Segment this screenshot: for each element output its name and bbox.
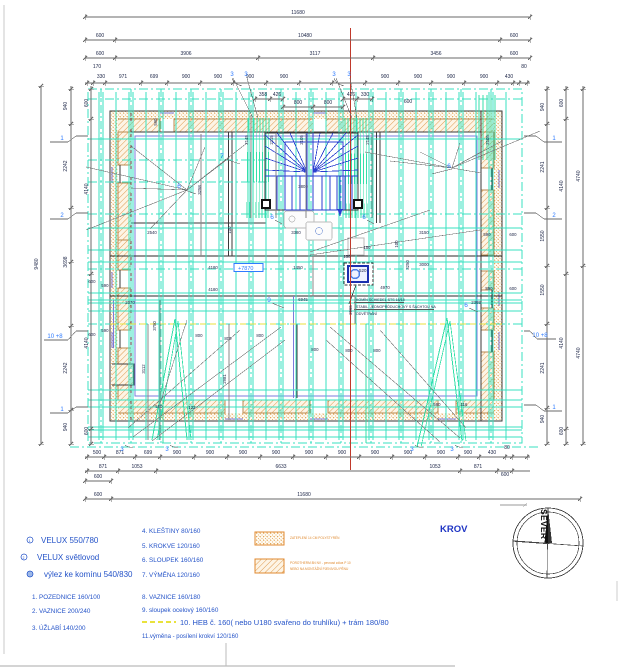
- svg-text:9. sloupek ocelový 160/160: 9. sloupek ocelový 160/160: [142, 607, 219, 614]
- svg-text:2370: 2370: [125, 300, 135, 305]
- svg-text:1. POZEDNICE 160/100: 1. POZEDNICE 160/100: [32, 594, 101, 601]
- svg-text:871: 871: [99, 464, 108, 470]
- svg-text:11680: 11680: [291, 10, 305, 16]
- svg-text:80: 80: [521, 64, 527, 70]
- svg-text:80: 80: [504, 445, 510, 451]
- svg-text:600: 600: [559, 99, 565, 108]
- svg-text:3750: 3750: [152, 321, 157, 331]
- svg-text:8. VAZNICE 160/180: 8. VAZNICE 160/180: [142, 594, 201, 601]
- svg-text:900: 900: [414, 74, 423, 80]
- svg-text:3698: 3698: [63, 256, 69, 267]
- svg-text:3. ÚŽLABÍ 140/200: 3. ÚŽLABÍ 140/200: [32, 623, 86, 632]
- svg-text:3800: 3800: [298, 184, 308, 189]
- svg-text:2105: 2105: [485, 135, 490, 145]
- svg-text:100: 100: [394, 240, 399, 248]
- svg-text:POROTHERM 8N NV - pevnost zdiv: POROTHERM 8N NV - pevnost zdiva P 10: [290, 561, 351, 565]
- svg-text:4140: 4140: [84, 183, 90, 194]
- svg-text:4180: 4180: [208, 265, 218, 270]
- svg-text:1550: 1550: [540, 284, 546, 295]
- svg-text:590: 590: [153, 118, 158, 126]
- svg-text:4970: 4970: [380, 285, 390, 290]
- svg-text:600: 600: [88, 279, 96, 284]
- svg-text:900: 900: [371, 450, 380, 456]
- svg-text:5. KROKVE 120/160: 5. KROKVE 120/160: [142, 543, 200, 550]
- svg-text:900: 900: [437, 450, 446, 456]
- svg-text:900: 900: [182, 74, 191, 80]
- svg-text:3150: 3150: [419, 230, 429, 235]
- svg-text:600: 600: [96, 33, 105, 39]
- svg-text:9: 9: [267, 297, 271, 304]
- svg-text:940: 940: [540, 103, 546, 112]
- svg-text:590: 590: [483, 232, 491, 237]
- svg-text:150: 150: [363, 245, 371, 250]
- svg-text:10480: 10480: [298, 33, 312, 39]
- svg-text:2981: 2981: [222, 374, 227, 384]
- svg-text:100: 100: [227, 226, 232, 234]
- svg-text:2145: 2145: [365, 135, 370, 145]
- svg-text:2540: 2540: [147, 230, 157, 235]
- svg-text:150: 150: [343, 254, 351, 259]
- svg-text:122: 122: [188, 405, 196, 410]
- svg-text:6: 6: [270, 214, 274, 221]
- svg-text:900: 900: [464, 450, 473, 456]
- svg-text:10 +8: 10 +8: [47, 334, 63, 340]
- svg-text:6633: 6633: [275, 464, 286, 470]
- svg-text:2115: 2115: [269, 135, 274, 145]
- svg-text:7. VÝMĚNA 120/160: 7. VÝMĚNA 120/160: [142, 570, 200, 579]
- svg-text:900: 900: [305, 450, 314, 456]
- svg-text:2241: 2241: [540, 161, 546, 172]
- svg-text:1053: 1053: [131, 464, 142, 470]
- svg-text:800: 800: [294, 100, 303, 106]
- svg-text:6945: 6945: [298, 297, 308, 302]
- svg-text:2145: 2145: [244, 135, 249, 145]
- svg-text:4140: 4140: [559, 180, 565, 191]
- svg-text:10 +8: 10 +8: [532, 333, 548, 339]
- svg-text:170: 170: [93, 64, 102, 70]
- svg-text:600: 600: [88, 332, 96, 337]
- svg-text:800: 800: [324, 100, 333, 106]
- svg-text:330: 330: [361, 92, 370, 98]
- svg-text:900: 900: [214, 74, 223, 80]
- svg-text:2965: 2965: [348, 305, 353, 315]
- svg-text:871: 871: [474, 464, 483, 470]
- svg-text:600: 600: [510, 51, 519, 57]
- svg-text:11680: 11680: [297, 492, 311, 498]
- svg-text:2241: 2241: [540, 362, 546, 373]
- svg-text:699: 699: [144, 450, 153, 456]
- svg-text:800: 800: [373, 348, 381, 353]
- svg-text:900: 900: [239, 450, 248, 456]
- svg-text:1053: 1053: [429, 464, 440, 470]
- svg-text:+7870: +7870: [238, 266, 253, 272]
- svg-text:1450: 1450: [293, 265, 303, 270]
- svg-text:900: 900: [338, 450, 347, 456]
- svg-text:430: 430: [505, 74, 514, 80]
- svg-text:600: 600: [84, 99, 90, 108]
- svg-text:výlez ke komínu 540/830: výlez ke komínu 540/830: [44, 570, 133, 579]
- svg-text:800: 800: [345, 348, 353, 353]
- svg-text:900: 900: [206, 450, 215, 456]
- svg-text:4180: 4180: [208, 287, 218, 292]
- svg-text:940: 940: [540, 415, 546, 424]
- svg-text:4140: 4140: [559, 337, 565, 348]
- svg-text:2: 2: [23, 556, 25, 560]
- svg-text:590: 590: [155, 404, 163, 409]
- svg-text:3380: 3380: [291, 230, 301, 235]
- svg-text:520: 520: [359, 268, 367, 273]
- svg-text:590: 590: [101, 328, 109, 333]
- svg-text:6. SLOUPEK 160/160: 6. SLOUPEK 160/160: [142, 557, 204, 564]
- svg-text:800: 800: [311, 347, 319, 352]
- svg-text:600: 600: [94, 474, 103, 480]
- svg-text:940: 940: [63, 102, 69, 111]
- svg-text:4140: 4140: [84, 337, 90, 348]
- svg-text:7: 7: [220, 153, 224, 160]
- svg-text:900: 900: [447, 74, 456, 80]
- svg-text:900: 900: [272, 450, 281, 456]
- svg-text:699: 699: [150, 74, 159, 80]
- svg-text:2105: 2105: [299, 135, 304, 145]
- svg-text:800: 800: [224, 336, 232, 341]
- svg-text:VELUX 550/780: VELUX 550/780: [41, 536, 99, 545]
- svg-text:1: 1: [29, 539, 31, 543]
- svg-text:2. VAZNICE 200/240: 2. VAZNICE 200/240: [32, 608, 91, 615]
- svg-text:KROV: KROV: [440, 524, 468, 535]
- svg-text:500: 500: [93, 450, 102, 456]
- svg-text:600: 600: [404, 99, 413, 105]
- svg-text:3112: 3112: [141, 364, 146, 374]
- svg-text:600: 600: [509, 232, 517, 237]
- svg-text:4. KLEŠTINY 80/160: 4. KLEŠTINY 80/160: [142, 526, 201, 535]
- svg-text:10. HEB č. 160( nebo U180 sv: 10. HEB č. 160( nebo U180 svařeno do tru…: [180, 618, 389, 627]
- svg-text:6: 6: [362, 214, 366, 221]
- svg-text:426: 426: [273, 92, 282, 98]
- svg-text:330: 330: [97, 74, 106, 80]
- svg-text:KOMÍN SCHIEDEL STS 18/18: KOMÍN SCHIEDEL STS 18/18: [356, 298, 405, 302]
- svg-text:430: 430: [488, 450, 497, 456]
- svg-text:600: 600: [501, 472, 510, 478]
- svg-text:3117: 3117: [310, 51, 321, 57]
- svg-text:VELUX světlovod: VELUX světlovod: [37, 553, 99, 562]
- svg-text:3906: 3906: [180, 51, 191, 57]
- svg-text:590: 590: [433, 402, 441, 407]
- svg-text:358: 358: [259, 92, 268, 98]
- svg-text:116: 116: [461, 402, 468, 407]
- svg-text:600: 600: [510, 33, 519, 39]
- svg-text:6: 6: [447, 163, 451, 170]
- svg-text:NEBO NA MONTÁŽNÍ PJENIVOU PĚN: NEBO NA MONTÁŽNÍ PJENIVOU PĚNU: [290, 566, 349, 571]
- svg-text:600: 600: [84, 427, 90, 436]
- svg-text:9480: 9480: [34, 258, 40, 269]
- svg-text:3250: 3250: [405, 260, 410, 270]
- svg-text:590: 590: [485, 286, 493, 291]
- svg-text:600: 600: [94, 492, 103, 498]
- svg-text:800: 800: [256, 333, 264, 338]
- svg-text:ODVĚTRÁNÍ: ODVĚTRÁNÍ: [356, 311, 377, 316]
- svg-text:3456: 3456: [430, 51, 441, 57]
- svg-text:2242: 2242: [63, 362, 69, 373]
- svg-text:426: 426: [347, 92, 356, 98]
- svg-text:STABIL. JEDNOPRŮDUCHOVÝ S ŠACH: STABIL. JEDNOPRŮDUCHOVÝ S ŠACHTOU NA: [356, 304, 436, 309]
- svg-text:6: 6: [177, 183, 181, 190]
- svg-text:900: 900: [280, 74, 289, 80]
- svg-text:1550: 1550: [540, 230, 546, 241]
- svg-text:940: 940: [63, 423, 69, 432]
- svg-text:900: 900: [381, 74, 390, 80]
- svg-text:ZATEPLENÍ 14 CM POLYSTYRÉN: ZATEPLENÍ 14 CM POLYSTYRÉN: [290, 535, 340, 540]
- svg-text:4740: 4740: [576, 347, 582, 358]
- svg-text:SEVER: SEVER: [539, 509, 549, 539]
- svg-text:900: 900: [480, 74, 489, 80]
- svg-text:11.výměna - posílení krokví 12: 11.výměna - posílení krokví 120/160: [142, 634, 239, 640]
- svg-text:6: 6: [464, 302, 468, 309]
- svg-text:600: 600: [96, 51, 105, 57]
- svg-text:800: 800: [195, 333, 203, 338]
- svg-text:3000: 3000: [419, 262, 429, 267]
- svg-text:600: 600: [509, 286, 517, 291]
- svg-text:590: 590: [101, 283, 109, 288]
- svg-text:600: 600: [559, 427, 565, 436]
- svg-text:971: 971: [119, 74, 128, 80]
- svg-text:2242: 2242: [63, 160, 69, 171]
- svg-text:4740: 4740: [576, 170, 582, 181]
- svg-text:2365: 2365: [471, 300, 481, 305]
- svg-text:900: 900: [173, 450, 182, 456]
- svg-text:3258: 3258: [197, 185, 202, 195]
